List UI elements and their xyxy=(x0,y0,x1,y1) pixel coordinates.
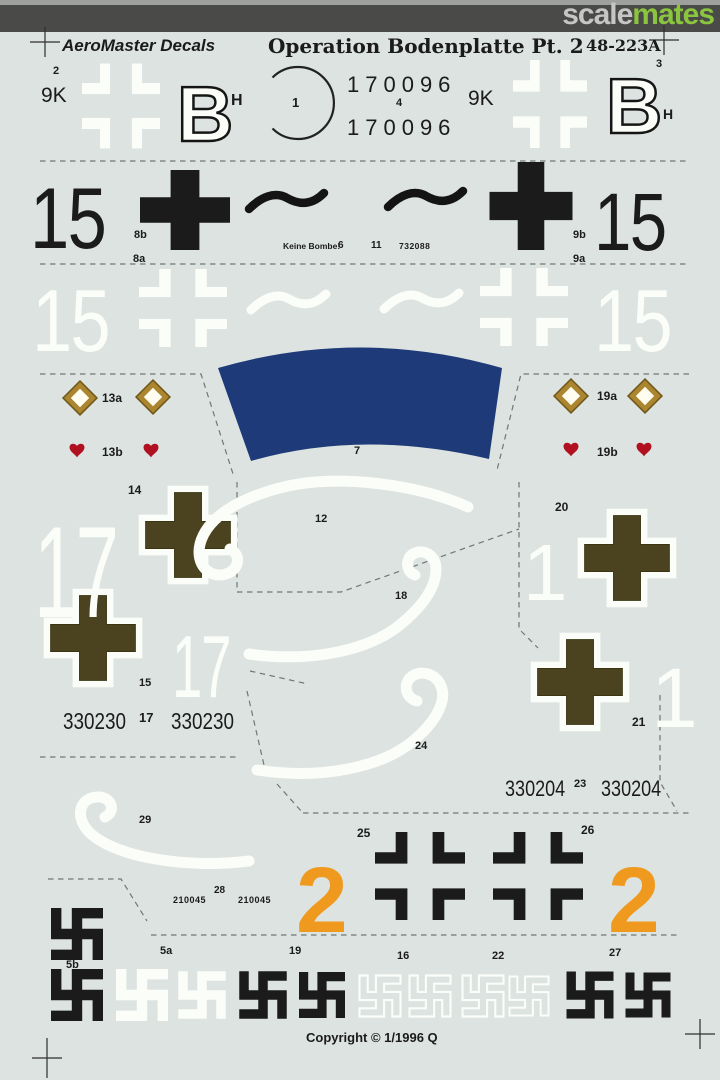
dashed-divider-4 xyxy=(247,671,308,765)
index-label-23: 23 xyxy=(574,778,586,790)
copyright-text: Copyright © 1/1996 Q xyxy=(306,1030,438,1045)
blue-fuselage-band xyxy=(218,348,502,462)
open-circle-marking xyxy=(273,67,334,139)
black-wave-2 xyxy=(388,191,463,207)
swastika-black-4 xyxy=(299,972,345,1018)
white-wave-1 xyxy=(251,294,326,310)
decal-sheet: scalemates xyxy=(0,0,720,1080)
index-label-28: 28 xyxy=(214,885,225,896)
index-label-3: 3 xyxy=(656,58,662,70)
black-wave-1 xyxy=(249,193,324,209)
white-wave-2 xyxy=(384,293,459,309)
index-label-24: 24 xyxy=(415,740,427,752)
number-2-orange-right: 2 xyxy=(608,847,660,954)
index-label-11: 11 xyxy=(371,240,382,251)
serial-170096-top: 170096 xyxy=(347,72,456,98)
letter-h-right: H xyxy=(663,106,673,122)
red-heart-icon-3 xyxy=(564,443,579,457)
number-15-black-left: 15 xyxy=(30,170,105,269)
index-label-25: 25 xyxy=(357,826,370,840)
swastika-outline-1 xyxy=(360,976,401,1017)
dashed-divider-8 xyxy=(48,879,681,935)
index-label-19: 19 xyxy=(289,945,301,957)
red-heart-icon-1 xyxy=(70,444,85,458)
balkenkreuz-white-1 xyxy=(82,64,160,149)
olive-cross-4 xyxy=(531,633,630,732)
swastika-outline-3 xyxy=(463,976,504,1017)
serial-732088: 732088 xyxy=(399,241,430,251)
serial-210045-b: 210045 xyxy=(238,895,271,905)
code-9k-right: 9K xyxy=(468,87,494,111)
registration-mark-top-left xyxy=(30,27,60,57)
balkenkreuz-white-2 xyxy=(513,60,587,148)
index-label-5a: 5a xyxy=(160,945,172,957)
white-swirl-18 xyxy=(249,552,436,657)
letter-b-right: B xyxy=(606,61,662,152)
swastika-white-1 xyxy=(116,969,168,1021)
index-label-6: 6 xyxy=(338,240,344,251)
white-swirl-29 xyxy=(80,797,249,864)
serial-170096-bottom: 170096 xyxy=(347,115,456,141)
registration-mark-bottom-left xyxy=(32,1038,62,1078)
red-heart-icon-2 xyxy=(144,444,159,458)
index-label-18: 18 xyxy=(395,590,407,602)
stencil-keine-bombe: Keine Bombe! xyxy=(283,241,340,251)
number-17-white-small: 17 xyxy=(172,616,230,718)
index-label-19b: 19b xyxy=(597,445,618,459)
index-label-9a: 9a xyxy=(573,253,585,265)
index-label-8b: 8b xyxy=(134,229,147,241)
serial-330204-a: 330204 xyxy=(505,776,565,802)
sheet-number: 48-223A xyxy=(586,36,661,55)
index-label-19a: 19a xyxy=(597,389,617,403)
gold-diamond-4 xyxy=(628,379,662,413)
swastika-outline-4 xyxy=(510,977,549,1016)
index-label-4: 4 xyxy=(396,97,402,109)
black-cross-2 xyxy=(490,162,573,250)
index-label-26: 26 xyxy=(581,823,594,837)
swastika-black-1 xyxy=(51,908,103,960)
index-label-22: 22 xyxy=(492,950,504,962)
white-swirl-12 xyxy=(199,481,468,575)
olive-cross-3 xyxy=(578,509,677,608)
dashed-divider-3-right xyxy=(497,374,689,470)
number-1-white-left: 1 xyxy=(523,527,568,619)
number-2-orange-left: 2 xyxy=(296,847,348,954)
index-label-13a: 13a xyxy=(102,391,122,405)
code-9k-left: 9K xyxy=(41,84,67,108)
number-1-white-right: 1 xyxy=(651,650,698,747)
index-label-15: 15 xyxy=(139,677,151,689)
index-label-16: 16 xyxy=(397,950,409,962)
letter-b-left: B xyxy=(177,69,233,160)
brand-title: AeroMaster Decals xyxy=(62,36,215,56)
swastika-outline-2 xyxy=(410,976,451,1017)
swastika-black-6 xyxy=(626,973,671,1018)
index-label-7: 7 xyxy=(354,445,360,457)
index-label-13b: 13b xyxy=(102,445,123,459)
index-label-12: 12 xyxy=(315,513,327,525)
balkenkreuz-white-4 xyxy=(480,268,568,346)
balkenkreuz-black-2 xyxy=(493,832,583,920)
index-label-2: 2 xyxy=(53,65,59,77)
serial-210045-a: 210045 xyxy=(173,895,206,905)
balkenkreuz-black-1 xyxy=(375,832,465,920)
swastika-black-2 xyxy=(51,969,103,1021)
index-label-17: 17 xyxy=(139,710,153,725)
index-label-29: 29 xyxy=(139,814,151,826)
number-15-white-right: 15 xyxy=(594,270,671,372)
index-label-8a: 8a xyxy=(133,253,145,265)
swastika-black-5 xyxy=(567,972,614,1019)
red-heart-icon-4 xyxy=(637,443,652,457)
index-label-21: 21 xyxy=(632,715,645,729)
index-label-9b: 9b xyxy=(573,229,586,241)
white-swirl-24 xyxy=(257,673,443,773)
serial-330204-b: 330204 xyxy=(601,776,661,802)
number-15-white-left: 15 xyxy=(32,270,109,372)
index-label-20: 20 xyxy=(555,500,568,514)
black-cross-1 xyxy=(140,170,230,250)
balkenkreuz-white-3 xyxy=(139,269,227,347)
gold-diamond-3 xyxy=(554,379,588,413)
number-15-black-right: 15 xyxy=(594,176,666,270)
circle-index-label: 1 xyxy=(292,95,299,110)
index-label-5b: 5b xyxy=(66,959,79,971)
swastika-white-2 xyxy=(178,971,226,1019)
gold-diamond-2 xyxy=(136,380,170,414)
letter-h-left: H xyxy=(231,92,243,110)
swastika-black-3 xyxy=(239,971,287,1019)
serial-330230-b: 330230 xyxy=(171,708,234,735)
sheet-title: Operation Bodenplatte Pt. 2 xyxy=(268,34,584,58)
registration-mark-bottom-right xyxy=(685,1019,715,1049)
index-label-27: 27 xyxy=(609,947,621,959)
dashed-swirl-box xyxy=(237,482,538,648)
dashed-divider-3-left xyxy=(40,374,234,477)
gold-diamond-1 xyxy=(63,381,97,415)
number-17-white-large: 17 xyxy=(34,497,117,647)
serial-330230-a: 330230 xyxy=(63,708,126,735)
index-label-14: 14 xyxy=(128,483,141,497)
